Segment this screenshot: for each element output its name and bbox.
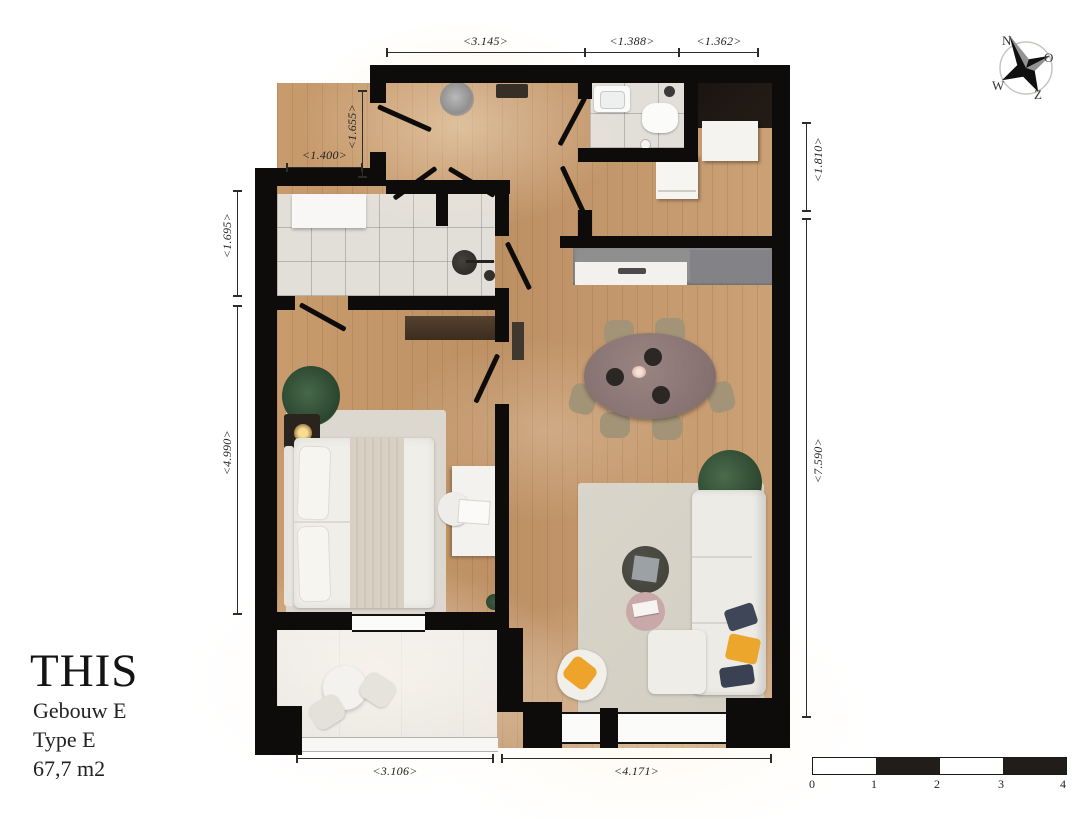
dimension-label: <3.106> <box>296 764 494 779</box>
plate <box>652 386 670 404</box>
dimension-line-right: <1.810> <box>806 122 820 212</box>
shower-head-icon <box>664 86 675 97</box>
wall <box>600 708 618 748</box>
sofa-cushion-seam <box>692 556 752 558</box>
window <box>618 712 726 744</box>
compass-east-label: O <box>1044 50 1053 66</box>
sink-basin <box>600 91 625 109</box>
plate <box>606 368 624 386</box>
duvet-seam <box>294 521 350 523</box>
bed-blanket <box>350 438 404 608</box>
wall <box>277 612 352 630</box>
dimension-label: <1.388> <box>585 34 679 49</box>
wall <box>497 628 523 712</box>
shower-head-icon <box>484 270 495 281</box>
coat-stand <box>440 82 474 116</box>
cabinet-handle <box>618 268 646 274</box>
wall <box>772 65 790 748</box>
dimension-label: <1.655> <box>345 104 360 149</box>
dresser <box>405 316 495 340</box>
scale-segment <box>940 758 1003 774</box>
storage-cabinet <box>702 121 758 161</box>
wall <box>348 296 495 310</box>
dimension-label: <4.171> <box>501 764 772 779</box>
dimension-line-left: <1.695> <box>237 190 251 297</box>
radiator <box>512 322 524 360</box>
dining-table <box>584 333 716 419</box>
scale-tick-label: 0 <box>809 777 815 792</box>
pillow <box>297 445 332 520</box>
dimension-line-right: <7.590> <box>806 218 820 718</box>
wall <box>495 404 509 630</box>
plate <box>644 348 662 366</box>
area-label: 67,7 m2 <box>33 756 105 782</box>
dimension-line-left-h: <1.400> <box>286 167 363 181</box>
scale-tick-label: 2 <box>934 777 940 792</box>
faucet <box>466 260 494 263</box>
pillow <box>297 525 332 602</box>
vanity <box>292 194 366 228</box>
dimension-line-bottom: <4.171> <box>501 758 772 780</box>
desk-laptop <box>457 499 491 525</box>
brand-logo: THIS <box>30 644 138 698</box>
doormat <box>496 84 528 98</box>
coffee-table-tray <box>631 555 659 582</box>
sofa-chaise <box>648 630 706 694</box>
wall <box>523 702 562 748</box>
building-label: Gebouw E <box>33 698 126 724</box>
dimension-label: <1.362> <box>679 34 759 49</box>
wall <box>255 168 277 755</box>
wall <box>425 612 500 630</box>
scale-tick-label: 1 <box>871 777 877 792</box>
wall <box>578 148 698 162</box>
compass-icon <box>982 24 1070 112</box>
wall <box>560 236 772 248</box>
scale-segment <box>1003 758 1066 774</box>
table-centerpiece <box>632 366 646 378</box>
scale-segment <box>813 758 876 774</box>
scale-bar <box>812 757 1067 775</box>
wall <box>495 288 509 342</box>
window <box>562 712 600 744</box>
scale-tick-label: 4 <box>1060 777 1066 792</box>
wall <box>726 698 790 748</box>
bathtub <box>642 103 678 133</box>
dimension-label: <4.990> <box>220 430 235 475</box>
unit-type-label: Type E <box>33 727 96 753</box>
dimension-label: <1.810> <box>811 137 826 182</box>
floorplan-sheet: <3.145> <1.388> <1.362> <1.655> <1.400> … <box>0 0 1092 819</box>
dimension-label: <1.400> <box>276 148 373 163</box>
dimension-label: <1.695> <box>220 213 235 258</box>
dimension-label: <3.145> <box>386 34 585 49</box>
dimension-line-left: <4.990> <box>237 305 251 615</box>
compass-north-label: N <box>1002 33 1011 49</box>
wall <box>255 706 302 755</box>
bed-headboard <box>284 446 294 606</box>
dimension-line-bottom: <3.106> <box>296 758 494 780</box>
washer-door-seam <box>658 190 696 192</box>
wall <box>684 83 698 148</box>
scale-segment <box>876 758 939 774</box>
dimension-line-left: <1.655> <box>362 90 376 178</box>
balcony-sliding-door <box>352 614 425 632</box>
kitchen-counter-appliance-section <box>690 250 772 283</box>
dimension-label: <7.590> <box>811 438 826 483</box>
dimension-line-top: <3.145> <1.388> <1.362> <box>386 52 759 72</box>
balcony-railing <box>300 737 498 752</box>
wall <box>436 186 448 226</box>
compass-south-label: Z <box>1034 87 1042 103</box>
wall <box>495 194 509 236</box>
scale-tick-label: 3 <box>998 777 1004 792</box>
compass-west-label: W <box>992 78 1004 94</box>
wall <box>277 296 295 310</box>
